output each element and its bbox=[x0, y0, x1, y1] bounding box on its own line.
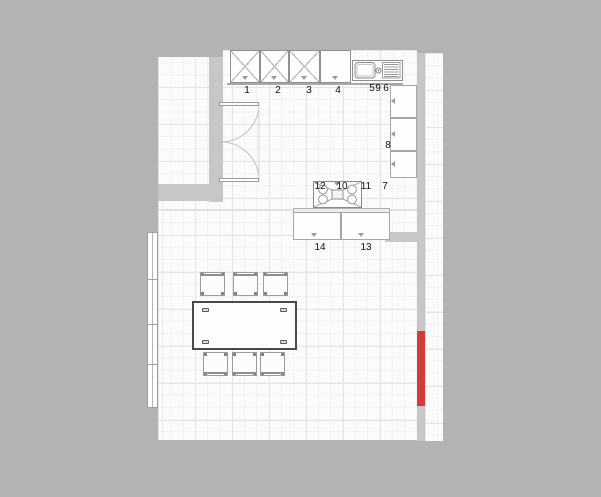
door-swing-icon bbox=[219, 99, 261, 186]
dining-table[interactable] bbox=[192, 301, 297, 350]
window-divider bbox=[148, 364, 157, 365]
table-leg bbox=[202, 308, 209, 312]
item-label-8: 8 bbox=[385, 141, 391, 151]
item-label-2: 2 bbox=[275, 86, 281, 96]
floor-edge-line bbox=[162, 201, 163, 440]
item-label-9: 9 bbox=[375, 84, 381, 94]
chair-backrest bbox=[202, 274, 223, 276]
chair-backrest bbox=[262, 372, 283, 374]
window[interactable] bbox=[147, 232, 158, 408]
item-label-7: 7 bbox=[382, 182, 388, 192]
item-label-13: 13 bbox=[360, 243, 371, 253]
chair-4[interactable] bbox=[203, 352, 228, 376]
door-direction-icon bbox=[332, 76, 338, 80]
table-leg bbox=[280, 340, 287, 344]
sink-icon bbox=[353, 61, 402, 80]
door-direction-icon bbox=[358, 233, 364, 237]
island-cabinet-13[interactable] bbox=[341, 212, 390, 240]
chair-backrest bbox=[235, 274, 256, 276]
item-label-5: 5 bbox=[369, 84, 375, 94]
item-label-10: 10 bbox=[336, 182, 347, 192]
window-divider bbox=[148, 324, 157, 325]
item-label-4: 4 bbox=[335, 86, 341, 96]
double-door[interactable] bbox=[219, 99, 261, 186]
door-direction-icon bbox=[391, 98, 395, 104]
item-label-11: 11 bbox=[361, 182, 371, 192]
table-leg bbox=[280, 308, 287, 312]
item-label-3: 3 bbox=[306, 86, 312, 96]
chair-5[interactable] bbox=[232, 352, 257, 376]
door-direction-icon bbox=[301, 76, 307, 80]
chair-backrest bbox=[205, 372, 226, 374]
chair-6[interactable] bbox=[260, 352, 285, 376]
door-direction-icon bbox=[242, 76, 248, 80]
balcony-floor bbox=[425, 53, 443, 441]
chair-1[interactable] bbox=[200, 272, 225, 296]
item-label-14: 14 bbox=[314, 243, 325, 253]
door-direction-icon bbox=[311, 233, 317, 237]
door-direction-icon bbox=[271, 76, 277, 80]
window-divider bbox=[148, 279, 157, 280]
chair-2[interactable] bbox=[233, 272, 258, 296]
item-label-6: 6 bbox=[383, 84, 389, 94]
floorplan-canvas: 1 2 3 4 5 9 6 8 7 12 10 11 14 13 bbox=[0, 0, 601, 497]
door-direction-icon bbox=[391, 161, 395, 167]
sink-unit[interactable] bbox=[352, 60, 403, 81]
chair-backrest bbox=[265, 274, 286, 276]
table-leg bbox=[202, 340, 209, 344]
door-direction-icon bbox=[391, 131, 395, 137]
chair-3[interactable] bbox=[263, 272, 288, 296]
window-frame-line bbox=[152, 233, 153, 407]
kitchen-floor bbox=[158, 50, 417, 440]
item-label-1: 1 bbox=[244, 86, 250, 96]
background-patch bbox=[158, 50, 223, 57]
chair-backrest bbox=[234, 372, 255, 374]
item-label-12: 12 bbox=[314, 182, 325, 192]
radiator[interactable] bbox=[417, 331, 425, 406]
wall-left-horizontal bbox=[158, 184, 222, 201]
island-cabinet-14[interactable] bbox=[293, 212, 341, 240]
